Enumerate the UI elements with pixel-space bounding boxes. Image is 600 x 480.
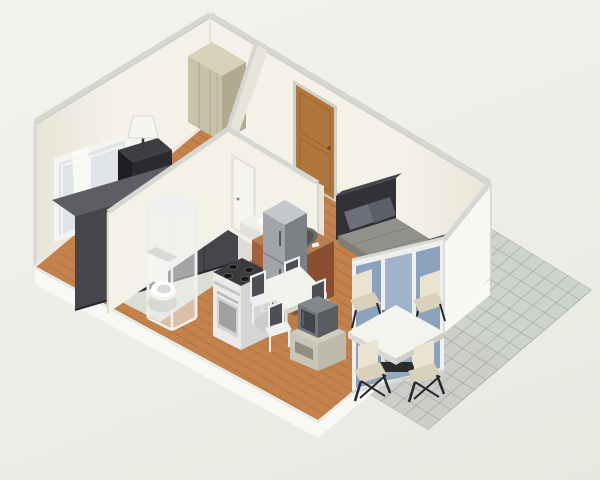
floorplan-3d-viewport xyxy=(0,0,600,480)
floorplan-canvas xyxy=(0,0,600,480)
bathroom-door-knob xyxy=(237,198,240,201)
entry-door-knob xyxy=(327,146,331,150)
